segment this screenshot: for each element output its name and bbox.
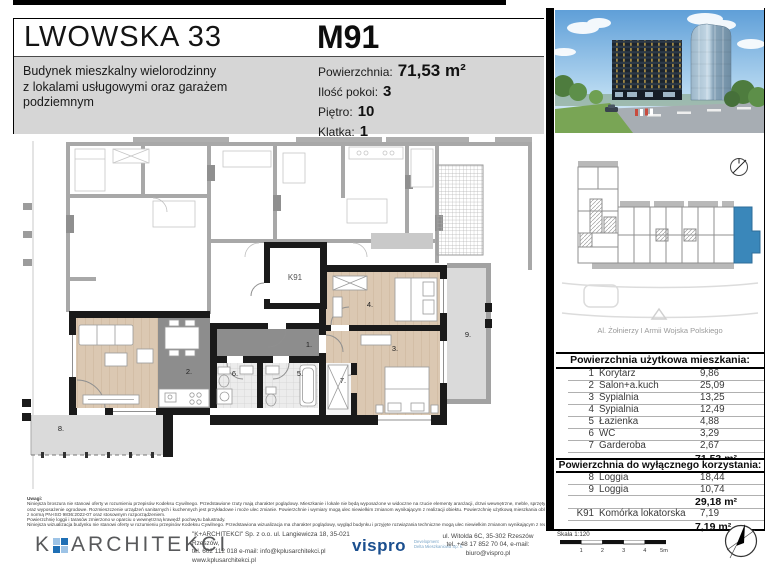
- dimension-marks: [23, 203, 32, 266]
- sidebar-right-border: [764, 8, 765, 531]
- storage-label: K91: [288, 273, 303, 282]
- floor-plan: 1. 2. 3. 4. 5. 6. 7. 8. 9. K91: [13, 137, 545, 495]
- cell-no: 9: [568, 485, 594, 496]
- scale-bar: 1 2 3 4 5m: [560, 540, 668, 554]
- project-description: Budynek mieszkalny wielorodzinny z lokal…: [23, 64, 263, 111]
- exclusive-area-total: 29,18 m²: [556, 496, 764, 508]
- unit-specs: Powierzchnia:71,53 m² Ilość pokoi:3 Pięt…: [318, 61, 466, 143]
- cell-no: 3: [568, 393, 594, 404]
- highlighted-unit: [734, 207, 760, 263]
- top-black-strip: [13, 0, 506, 5]
- room-label-7: 7.: [340, 376, 346, 385]
- vertical-divider: [546, 8, 554, 531]
- svg-text:5m: 5m: [660, 548, 668, 554]
- cell-no: 7: [568, 441, 594, 452]
- room-label-8: 8.: [58, 424, 64, 433]
- cell-area: 13,25: [700, 393, 764, 404]
- usable-area-table: Powierzchnia użytkowa mieszkania: 1Koryt…: [556, 352, 764, 466]
- north-arrow-icon: [731, 159, 748, 176]
- unit-id: M91: [317, 19, 379, 56]
- staircase: [437, 165, 483, 255]
- table-row: 3Sypialnia13,25: [568, 393, 764, 405]
- cell-area: 3,29: [700, 429, 764, 440]
- street-label: Al. Żołnierzy I Armii Wojska Polskiego: [556, 326, 764, 335]
- room-label-9: 9.: [465, 330, 471, 339]
- room-label-2: 2.: [186, 367, 192, 376]
- cell-area: 25,09: [700, 381, 764, 392]
- cell-name: Loggia: [599, 473, 695, 484]
- table-row: 2Salon+a.kuch25,09: [568, 381, 764, 393]
- architect-logo-icon: [53, 538, 68, 553]
- architect-logo-k: K: [35, 533, 50, 557]
- site-roads: [562, 283, 758, 319]
- spec-floor: Piętro:10: [318, 103, 466, 121]
- room-label-5: 5.: [297, 369, 303, 378]
- exclusive-area-rows: 8Loggia18,449Loggia10,74: [556, 473, 764, 496]
- cell-no: 5: [568, 417, 594, 428]
- svg-text:3: 3: [622, 548, 625, 554]
- table-row: 5Łazienka4,88: [568, 417, 764, 429]
- legal-notes: Uwagi: Niniejsza broszura nie stanowi of…: [27, 496, 545, 528]
- cell-name: Sypialnia: [599, 405, 695, 416]
- project-title: LWOWSKA 33: [24, 21, 222, 54]
- cell-name: Korytarz: [599, 369, 695, 380]
- table-row: 9Loggia10,74: [568, 485, 764, 497]
- cell-name: WC: [599, 429, 695, 440]
- spec-area: Powierzchnia:71,53 m²: [318, 61, 466, 81]
- table-row: 6WC3,29: [568, 429, 764, 441]
- cell-no: 2: [568, 381, 594, 392]
- table-row: 8Loggia18,44: [568, 473, 764, 485]
- svg-text:4: 4: [643, 548, 646, 554]
- cell-no: 4: [568, 405, 594, 416]
- cell-no: 8: [568, 473, 594, 484]
- key-plan: [556, 137, 764, 325]
- cell-area: 18,44: [700, 473, 764, 484]
- cell-no: 6: [568, 429, 594, 440]
- cell-name: Loggia: [599, 485, 695, 496]
- cell-area: 10,74: [700, 485, 764, 496]
- brochure-page: LWOWSKA 33 M91 Budynek mieszkalny wielor…: [0, 0, 770, 570]
- cell-area: 4,88: [700, 417, 764, 428]
- glass-tower: [691, 24, 731, 100]
- header-gray-band: Budynek mieszkalny wielorodzinny z lokal…: [14, 57, 544, 134]
- cell-area: 9,86: [700, 369, 764, 380]
- spec-rooms: Ilość pokoi:3: [318, 83, 466, 101]
- developer-contact: ul. Witolda 6C, 35-302 Rzeszów tel. +48 …: [428, 533, 548, 558]
- cell-name: Garderoba: [599, 441, 695, 452]
- room-label-4: 4.: [367, 300, 373, 309]
- title-band: LWOWSKA 33 M91: [14, 19, 544, 57]
- cell-name: Salon+a.kuch: [599, 381, 695, 392]
- cell-no: 1: [568, 369, 594, 380]
- room-label-3: 3.: [392, 344, 398, 353]
- compass-rose-icon: [720, 520, 762, 562]
- table-row: 4Sypialnia12,49: [568, 405, 764, 417]
- scale-label: Skala 1:120: [557, 531, 590, 538]
- svg-text:2: 2: [601, 548, 604, 554]
- cell-area: 2,67: [700, 441, 764, 452]
- svg-text:1: 1: [580, 548, 583, 554]
- dark-tower: [612, 40, 682, 100]
- corridor-tile: [210, 329, 319, 356]
- cell-name: Sypialnia: [599, 393, 695, 404]
- loggia-8-floor: [31, 415, 163, 455]
- usable-area-rows: 1Korytarz9,862Salon+a.kuch25,093Sypialni…: [556, 369, 764, 453]
- building-rendering-image: [555, 10, 765, 133]
- architect-contact: "K+ARCHITEKCI" Sp. z o.o. ul. Langiewicz…: [192, 531, 360, 565]
- cell-name: Łazienka: [599, 417, 695, 428]
- table-row: 1Korytarz9,86: [568, 369, 764, 381]
- room-label-6: 6.: [232, 369, 238, 378]
- exclusive-area-title: Powierzchnia do wyłącznego korzystania:: [556, 458, 764, 473]
- neighbor-balcony-band: [371, 233, 433, 249]
- neighbor-balconies: [133, 137, 532, 142]
- usable-area-title: Powierzchnia użytkowa mieszkania:: [556, 352, 764, 369]
- developer-logo: vispro: [352, 536, 406, 556]
- storage-row: K91 Komórka lokatorska 7,19: [568, 508, 764, 521]
- cell-area: 12,49: [700, 405, 764, 416]
- header: LWOWSKA 33 M91 Budynek mieszkalny wielor…: [13, 18, 544, 134]
- room-label-1: 1.: [306, 340, 312, 349]
- table-row: 7Garderoba2,67: [568, 441, 764, 453]
- building-footprint: [578, 161, 760, 269]
